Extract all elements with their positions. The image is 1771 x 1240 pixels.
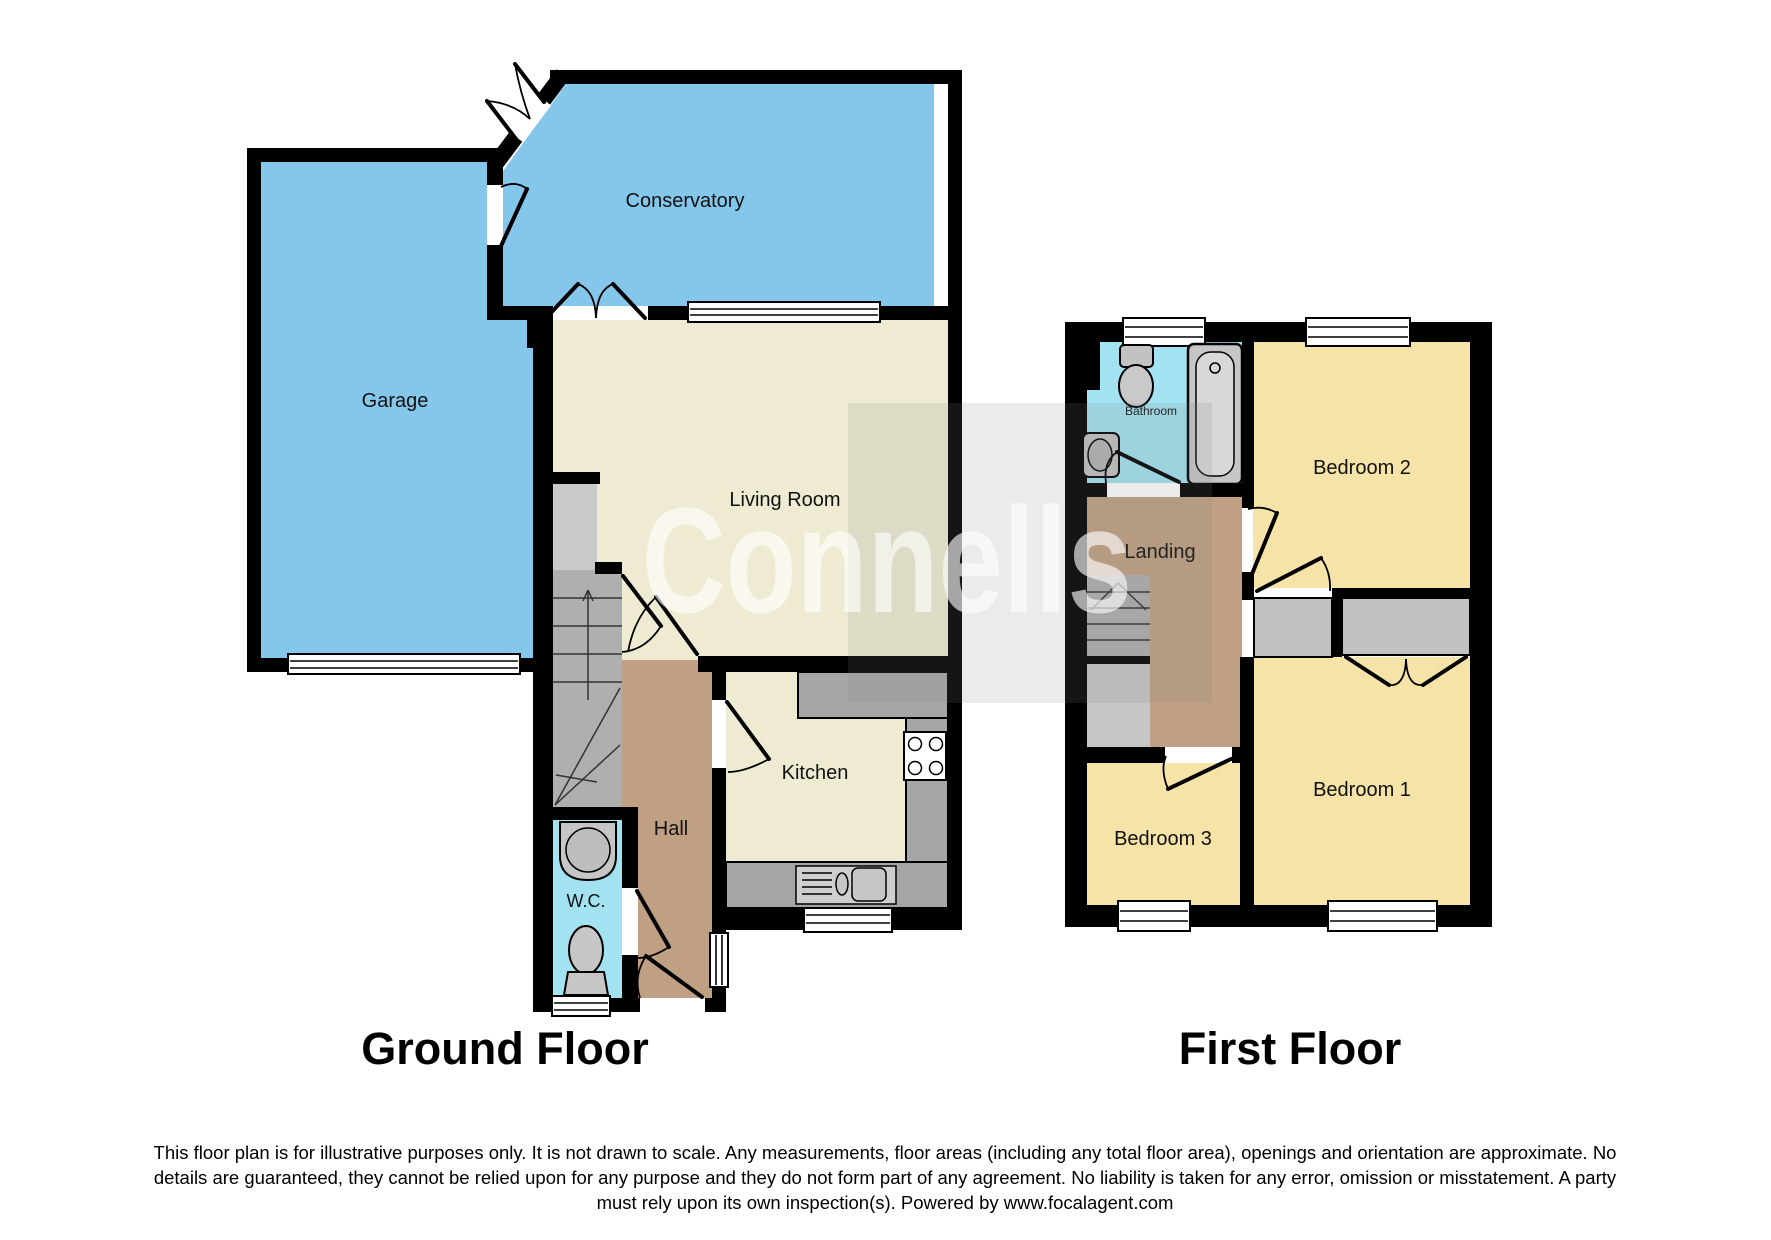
garage-door	[288, 654, 520, 674]
bedroom2-label: Bedroom 2	[1313, 457, 1411, 479]
bathroom-window	[1123, 318, 1205, 346]
wc-window	[552, 996, 610, 1016]
wc-basin-icon	[560, 822, 616, 880]
bedroom3-window	[1118, 901, 1190, 931]
conservatory-label: Conservatory	[626, 190, 745, 212]
hall-side-window	[710, 933, 728, 987]
bedroom1-window	[1328, 901, 1437, 931]
hall-label: Hall	[654, 818, 688, 840]
bedroom3-label: Bedroom 3	[1114, 828, 1212, 850]
disclaimer: This floor plan is for illustrative purp…	[154, 1142, 1617, 1213]
cupboard-right	[1342, 598, 1470, 655]
bedroom1-label: Bedroom 1	[1313, 779, 1411, 801]
kitchen-window	[804, 906, 892, 932]
floorplan-page: Garage Conservatory Living Room Kitchen …	[0, 0, 1771, 1240]
disclaimer-line-3: must rely upon its own inspection(s). Po…	[597, 1192, 1174, 1213]
floorplan-canvas: Garage Conservatory Living Room Kitchen …	[0, 0, 1771, 1240]
cupboard-left	[1254, 598, 1332, 657]
living-room-window	[688, 302, 880, 322]
toilet-icon	[1119, 345, 1153, 407]
bedroom2-window	[1306, 318, 1410, 346]
ground-floor-title: Ground Floor	[361, 1023, 648, 1074]
disclaimer-line-2: details are guaranteed, they cannot be r…	[154, 1167, 1617, 1188]
sink-drainer-icon	[796, 866, 896, 904]
first-floor-title: First Floor	[1179, 1023, 1402, 1074]
wc-label: W.C.	[567, 891, 606, 911]
garage-label: Garage	[362, 390, 429, 412]
kitchen-label: Kitchen	[782, 762, 849, 784]
stairs-upper-flight	[553, 484, 597, 570]
watermark-text: Connells	[642, 476, 1132, 644]
disclaimer-line-1: This floor plan is for illustrative purp…	[154, 1142, 1617, 1163]
hob-icon	[904, 732, 946, 780]
